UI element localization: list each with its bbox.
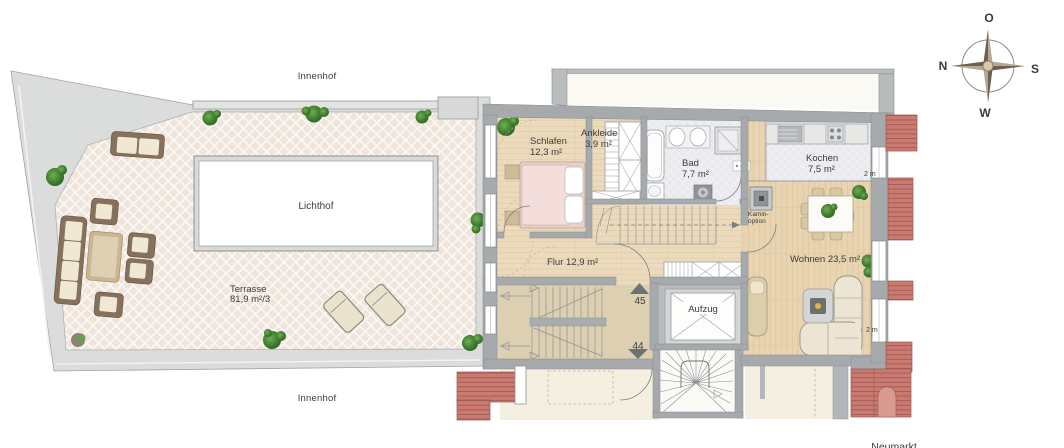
svg-text:Kamin-: Kamin- [748,211,769,218]
svg-text:O: O [984,11,993,25]
svg-text:Lichthof: Lichthof [298,201,333,212]
svg-text:Innenhof: Innenhof [298,393,337,404]
svg-text:Neumarkt: Neumarkt [871,441,917,448]
svg-text:Wohnen 23,5 m²: Wohnen 23,5 m² [790,254,860,265]
svg-text:45: 45 [634,296,646,307]
svg-text:Kochen: Kochen [806,153,838,164]
svg-text:Flur 12,9 m²: Flur 12,9 m² [547,257,598,268]
svg-text:12,3 m²: 12,3 m² [530,147,562,158]
svg-text:N: N [939,59,948,73]
svg-text:option: option [748,218,766,225]
svg-text:Ankleide: Ankleide [581,128,617,139]
svg-text:2 m: 2 m [866,327,878,334]
svg-text:Aufzug: Aufzug [688,304,718,315]
svg-text:Schlafen: Schlafen [530,136,567,147]
svg-text:S: S [1031,62,1039,76]
svg-text:2 m: 2 m [864,171,876,178]
svg-text:W: W [979,106,991,120]
svg-text:Bad: Bad [682,158,699,169]
svg-text:7,7 m²: 7,7 m² [682,169,709,180]
svg-text:7,5 m²: 7,5 m² [808,164,835,175]
svg-text:81,9 m²/3: 81,9 m²/3 [230,294,270,305]
svg-text:3,9 m²: 3,9 m² [585,139,612,150]
svg-text:Innenhof: Innenhof [298,71,337,82]
